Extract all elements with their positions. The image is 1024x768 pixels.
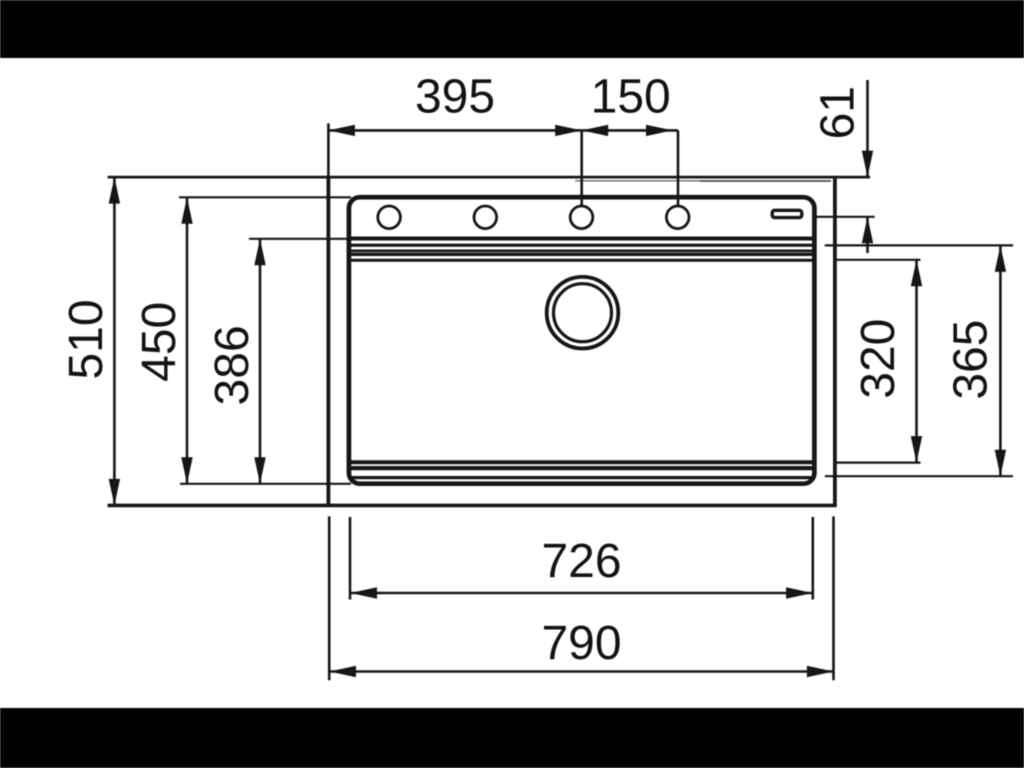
svg-text:365: 365 <box>945 320 998 400</box>
svg-text:61: 61 <box>812 86 865 139</box>
svg-text:320: 320 <box>852 319 905 399</box>
svg-text:510: 510 <box>60 299 113 379</box>
svg-text:386: 386 <box>206 325 259 405</box>
svg-text:395: 395 <box>415 71 495 124</box>
svg-text:150: 150 <box>591 71 671 124</box>
svg-text:790: 790 <box>541 617 621 670</box>
svg-text:726: 726 <box>541 535 621 588</box>
svg-text:450: 450 <box>133 302 186 382</box>
